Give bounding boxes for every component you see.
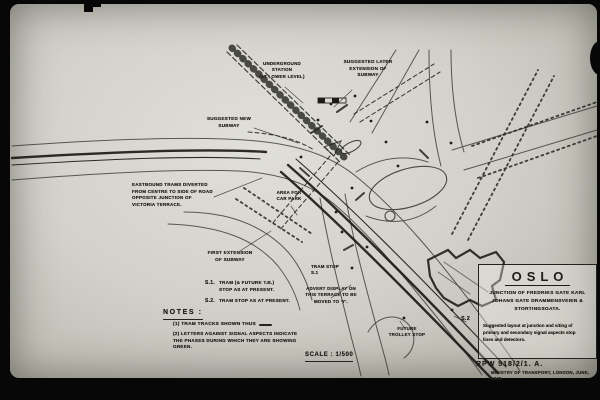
tick-row-right-2 — [468, 76, 554, 240]
island-central-oval — [364, 158, 452, 218]
title-description: Suggested layout at junction and siting … — [479, 322, 596, 344]
stop-lines — [300, 105, 428, 250]
annotation-suggested-later-extension: SUGGESTED LATER EXTENSION OF SUBWAY — [333, 59, 403, 79]
title-city: OSLO — [505, 269, 571, 286]
road-east-bottom-edge — [464, 130, 597, 170]
annotation-s2-marker: S.2 — [461, 316, 470, 324]
annotation-suggested-new-subway: SUGGESTED NEW SUBWAY — [201, 116, 257, 129]
scale-label: SCALE : 1/500 — [305, 351, 353, 362]
building-hatch-2 — [438, 272, 470, 294]
ministry-credit: MINISTRY OF TRANSPORT, LONDON, JUNE, 194… — [491, 370, 600, 382]
tick-row-east-1 — [472, 102, 597, 146]
annotation-tram-stop-s1: TRAM STOP S.1 — [311, 264, 347, 277]
drawing-number: RPW 518/2/1. A. — [476, 360, 543, 370]
island-circle — [385, 211, 395, 221]
tram-track-symbol — [259, 324, 272, 327]
legend-text-s2: TRAM STOP AS AT PRESENT. — [219, 298, 290, 305]
road-south-right-edge — [345, 194, 389, 375]
scale-bar — [318, 98, 346, 103]
road-north-vertical-left — [429, 50, 441, 166]
legend-row-s2: S.2. TRAM STOP AS AT PRESENT. — [205, 298, 325, 305]
note-1: (1) TRAM TRACKS SHOWN THUS — [173, 322, 272, 329]
annotation-first-extension-of-subway: FIRST EXTENSION OF SUBWAY — [200, 250, 260, 263]
title-block: OSLO JUNCTION OF FREDRIKS GATE KARL JOHA… — [478, 264, 597, 359]
legend-row-s1: S.1. TRAM (& FUTURE T.B.) STOP AS AT PRE… — [205, 280, 315, 293]
annotation-future-trolley-stop: FUTURE TROLLEY STOP — [384, 326, 430, 339]
roundabout-north-kerb — [356, 158, 428, 172]
annotation-eastbound-trams: EASTBOUND TRAMS DIVERTED FROM CENTRE TO … — [132, 182, 228, 208]
legend-text-s1: TRAM (& FUTURE T.B.) STOP AS AT PRESENT. — [219, 280, 274, 293]
tram-track-west-1 — [12, 150, 266, 158]
note-1-text: (1) TRAM TRACKS SHOWN THUS — [173, 322, 256, 329]
legend-key-s2: S.2. — [205, 298, 219, 305]
note-2: (2) LETTERS AGAINST SIGNAL ASPECTS INDIC… — [173, 331, 315, 351]
annotation-underground-station: UNDERGROUND STATION (AT LOWER LEVEL) — [252, 61, 312, 80]
tick-row-east-2 — [478, 136, 597, 178]
film-smudge — [590, 41, 600, 75]
annotation-area-for-car-park: AREA FOR CAR PARK — [273, 190, 305, 203]
notes-heading: NOTES : — [163, 308, 203, 320]
title-junction-names: JUNCTION OF FREDRIKS GATE KARL JOHANS GA… — [479, 290, 596, 314]
road-north-vertical-right — [451, 50, 464, 152]
film-mark — [84, 0, 101, 12]
film-photograph-of-junction-plan: UNDERGROUND STATION (AT LOWER LEVEL) SUG… — [0, 0, 600, 400]
subway-later-extension-2 — [360, 72, 440, 122]
legend-key-s1: S.1. — [205, 280, 219, 287]
tram-track-west-2 — [12, 157, 260, 165]
